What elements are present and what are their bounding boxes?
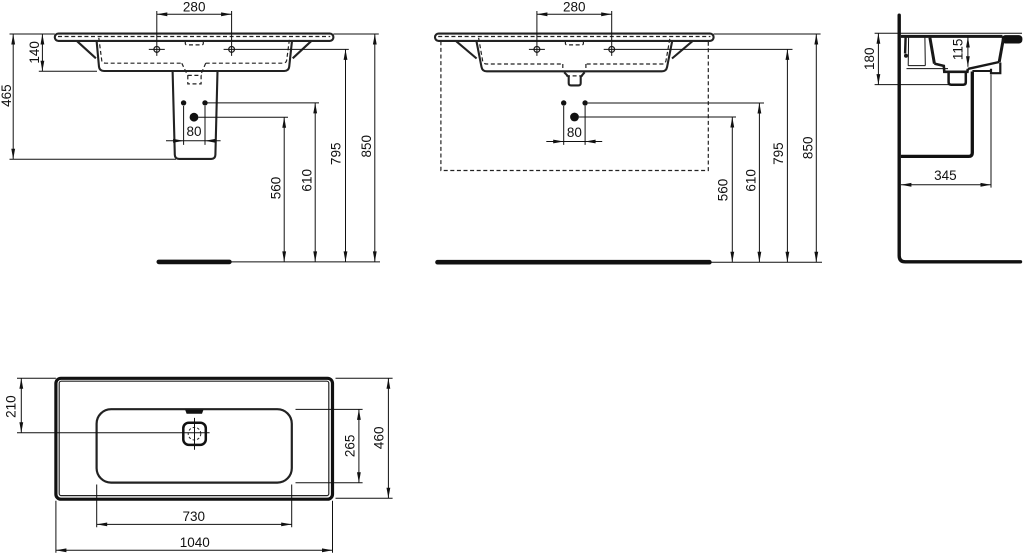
svg-text:850: 850: [800, 137, 815, 160]
svg-text:610: 610: [744, 169, 759, 192]
svg-text:560: 560: [716, 179, 731, 202]
svg-text:180: 180: [862, 47, 877, 70]
svg-text:80: 80: [567, 125, 582, 140]
svg-text:345: 345: [934, 168, 957, 183]
svg-text:1040: 1040: [180, 535, 210, 550]
svg-text:140: 140: [27, 41, 42, 64]
svg-text:280: 280: [183, 0, 206, 15]
svg-text:280: 280: [563, 0, 586, 15]
svg-text:850: 850: [359, 135, 374, 158]
svg-text:465: 465: [0, 84, 14, 107]
svg-text:795: 795: [329, 143, 344, 166]
svg-text:610: 610: [300, 169, 315, 192]
svg-text:730: 730: [183, 509, 206, 524]
svg-text:795: 795: [771, 142, 786, 165]
svg-text:460: 460: [371, 427, 386, 450]
svg-text:80: 80: [186, 124, 201, 139]
svg-text:560: 560: [268, 177, 283, 200]
svg-text:210: 210: [3, 395, 18, 418]
svg-text:115: 115: [950, 39, 965, 61]
svg-text:265: 265: [342, 435, 357, 458]
